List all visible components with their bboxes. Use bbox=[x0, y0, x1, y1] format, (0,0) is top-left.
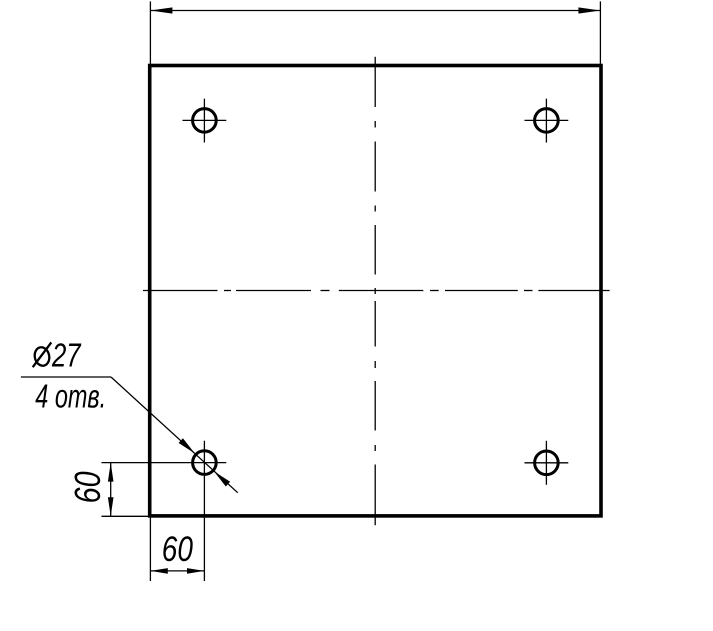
svg-text:60: 60 bbox=[162, 529, 193, 569]
svg-text:27: 27 bbox=[51, 337, 82, 374]
svg-text:4 отв.: 4 отв. bbox=[35, 379, 106, 416]
svg-text:60: 60 bbox=[67, 471, 108, 503]
